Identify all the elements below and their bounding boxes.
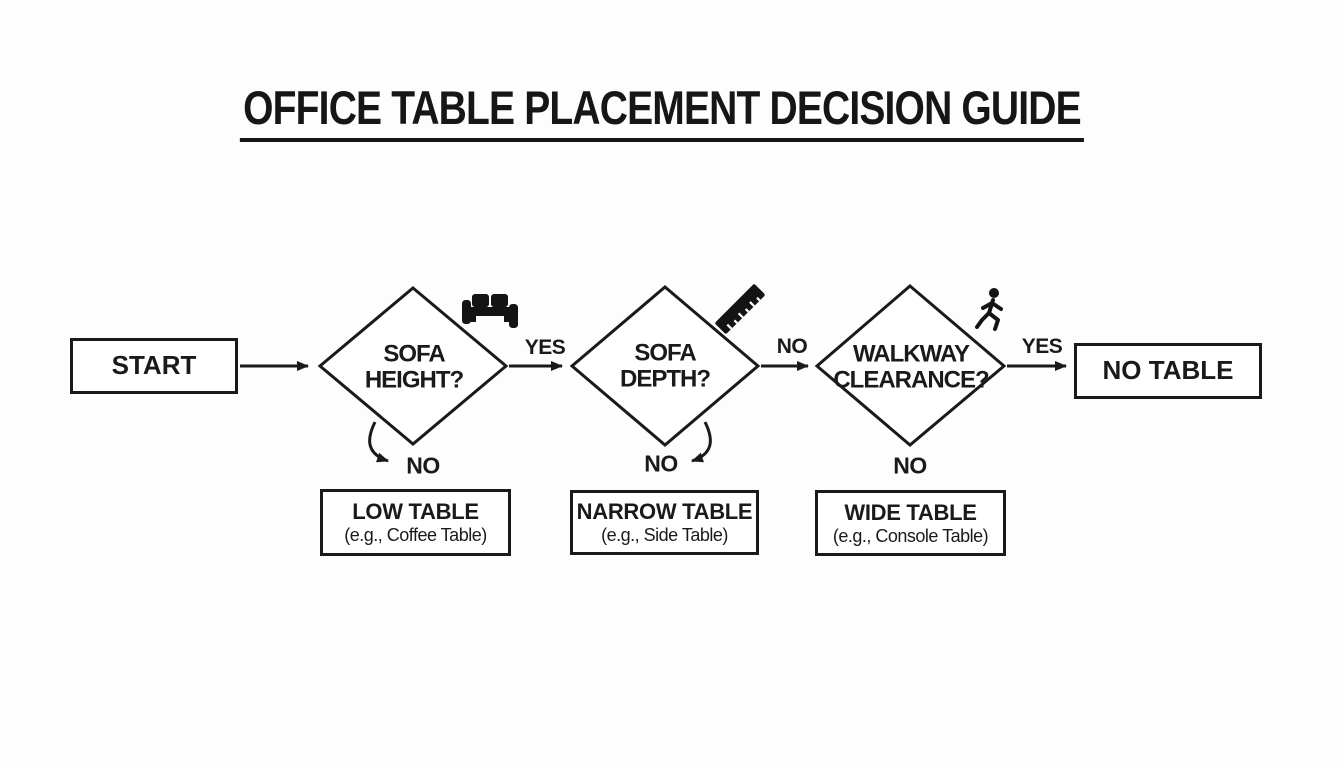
sofa-icon: [462, 294, 518, 328]
result-narrow-table-title: NARROW TABLE: [577, 499, 753, 524]
arrow-d2-no-curve: [692, 422, 710, 461]
result-low-table-subtitle: (e.g., Coffee Table): [344, 525, 486, 546]
result-narrow-table-box: NARROW TABLE (e.g., Side Table): [570, 490, 759, 555]
result-wide-table-subtitle: (e.g., Console Table): [833, 526, 988, 547]
decision-sofa-height-label: SOFA HEIGHT?: [319, 342, 509, 395]
decision-sofa-depth-line2: DEPTH?: [570, 367, 760, 393]
edge-label-d1-yes: YES: [525, 336, 566, 360]
no-table-node: NO TABLE: [1074, 343, 1262, 399]
edge-label-d3-no-down: NO: [893, 453, 927, 480]
result-narrow-table-subtitle: (e.g., Side Table): [601, 525, 728, 546]
walking-person-icon: [977, 288, 1001, 329]
edge-label-d1-no-down: NO: [406, 453, 440, 480]
result-wide-table-box: WIDE TABLE (e.g., Console Table): [815, 490, 1006, 556]
decision-walkway-clearance-label: WALKWAY CLEARANCE?: [816, 342, 1006, 395]
decision-walkway-clearance-line1: WALKWAY: [816, 342, 1006, 368]
decision-sofa-height-line1: SOFA: [319, 342, 509, 368]
result-low-table-box: LOW TABLE (e.g., Coffee Table): [320, 489, 511, 556]
decision-walkway-clearance-line2: CLEARANCE?: [816, 368, 1006, 394]
edge-label-d2-no-down: NO: [644, 451, 678, 478]
decision-sofa-depth-label: SOFA DEPTH?: [570, 341, 760, 394]
start-node: START: [70, 338, 238, 394]
ruler-icon: [715, 284, 766, 335]
decision-sofa-height-line2: HEIGHT?: [319, 368, 509, 394]
flowchart-stage: OFFICE TABLE PLACEMENT DECISION GUIDE ST…: [0, 0, 1344, 768]
result-wide-table-title: WIDE TABLE: [844, 500, 976, 525]
edge-label-d2-no: NO: [777, 335, 808, 359]
arrow-d1-no-curve: [370, 422, 388, 461]
no-table-node-label: NO TABLE: [1103, 357, 1234, 384]
decision-sofa-depth-line1: SOFA: [570, 341, 760, 367]
edge-label-d3-yes: YES: [1022, 335, 1063, 359]
start-node-label: START: [112, 352, 197, 379]
page-title: OFFICE TABLE PLACEMENT DECISION GUIDE: [240, 84, 1084, 142]
result-low-table-title: LOW TABLE: [352, 499, 478, 524]
